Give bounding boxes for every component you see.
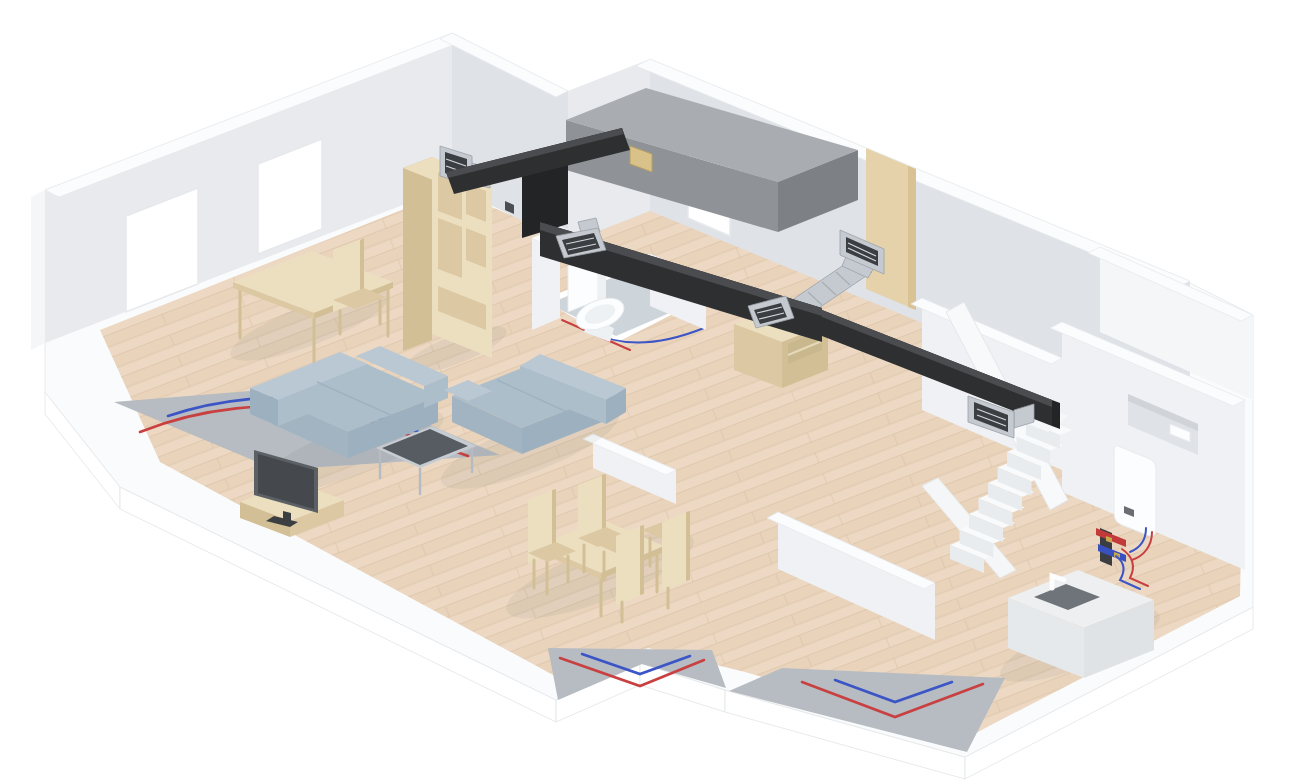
- wooden-door-edge: [908, 166, 916, 310]
- wall-end-cap: [31, 190, 45, 350]
- chair-back-edge: [686, 511, 690, 581]
- shelving-cubby: [438, 218, 462, 278]
- boiler: [1114, 446, 1156, 537]
- chair-back-edge: [640, 525, 644, 595]
- chair-back: [662, 511, 690, 591]
- chair-back: [616, 525, 644, 605]
- shelving-side: [403, 157, 432, 351]
- floorplan-illustration: [0, 0, 1292, 783]
- duct-end-cap: [1052, 400, 1060, 429]
- boiler-body: [1114, 446, 1156, 537]
